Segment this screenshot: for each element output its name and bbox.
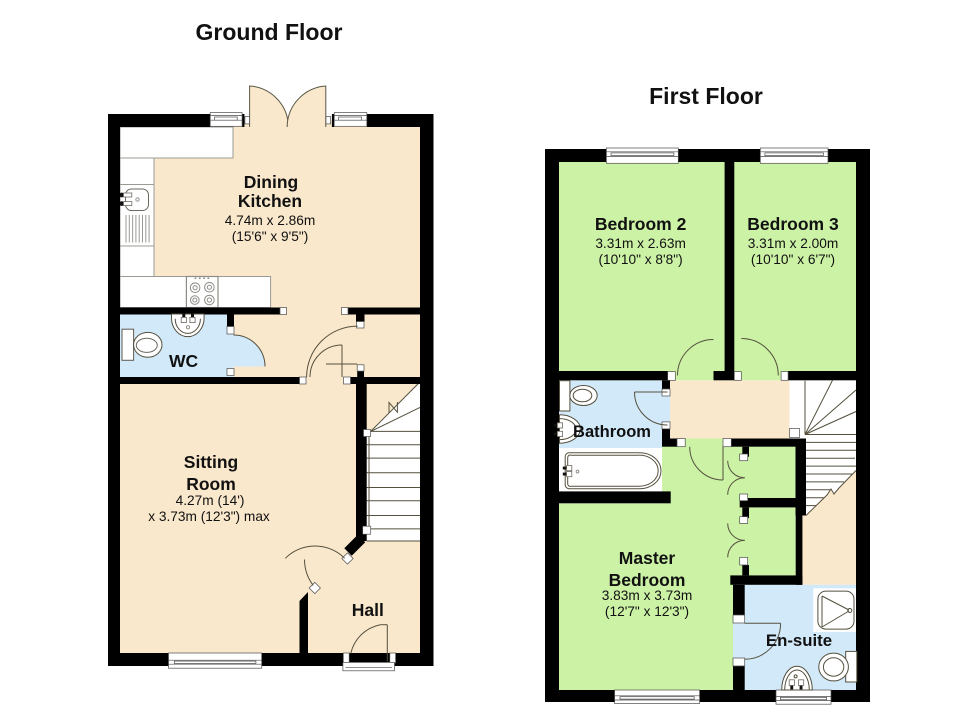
svg-text:3.31m x 2.00m: 3.31m x 2.00m: [748, 236, 839, 251]
svg-text:4.74m x 2.86m: 4.74m x 2.86m: [225, 213, 316, 228]
svg-text:Bathroom: Bathroom: [573, 423, 651, 441]
svg-text:Dining: Dining: [244, 172, 298, 192]
svg-text:WC: WC: [169, 351, 199, 371]
svg-text:(10'10" x 8'8"): (10'10" x 8'8"): [599, 252, 683, 267]
svg-text:(15'6" x 9'5"): (15'6" x 9'5"): [232, 229, 309, 244]
svg-text:3.83m x 3.73m: 3.83m x 3.73m: [602, 588, 693, 603]
svg-text:x 3.73m (12'3") max: x 3.73m (12'3") max: [148, 509, 270, 524]
svg-text:Master: Master: [619, 548, 676, 568]
svg-text:Hall: Hall: [352, 600, 384, 620]
svg-text:Room: Room: [186, 474, 236, 494]
svg-text:Ground Floor: Ground Floor: [196, 19, 343, 45]
svg-text:Sitting: Sitting: [184, 452, 238, 472]
svg-text:Kitchen: Kitchen: [238, 191, 302, 211]
svg-text:(12'7" x 12'3"): (12'7" x 12'3"): [605, 604, 689, 619]
svg-text:First Floor: First Floor: [649, 83, 763, 109]
svg-text:Bedroom 2: Bedroom 2: [595, 214, 687, 234]
svg-text:(10'10" x 6'7"): (10'10" x 6'7"): [751, 252, 835, 267]
svg-text:En-suite: En-suite: [766, 631, 832, 650]
svg-text:Bedroom 3: Bedroom 3: [747, 214, 839, 234]
svg-text:Bedroom: Bedroom: [609, 570, 686, 590]
svg-text:4.27m (14'): 4.27m (14'): [176, 493, 245, 508]
svg-text:3.31m x 2.63m: 3.31m x 2.63m: [595, 236, 686, 251]
